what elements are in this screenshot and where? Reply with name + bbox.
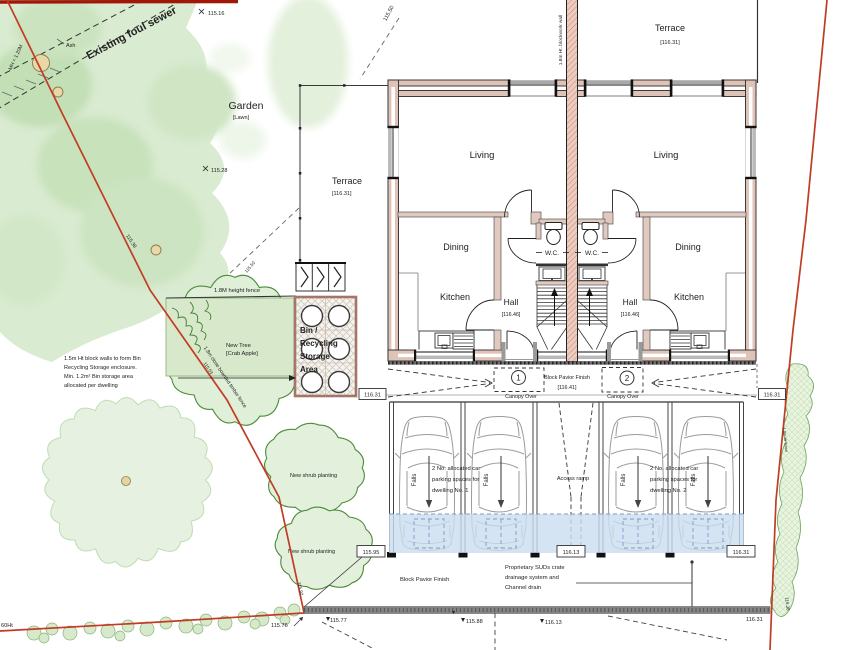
svg-text:Living: Living	[470, 150, 495, 161]
svg-text:W.C.: W.C.	[585, 250, 599, 257]
svg-text:116.13: 116.13	[563, 550, 580, 556]
svg-text:115.16: 115.16	[208, 11, 224, 17]
svg-text:Living: Living	[654, 150, 679, 161]
svg-text:[116.31]: [116.31]	[660, 40, 680, 46]
svg-text:allocated per dwelling: allocated per dwelling	[64, 383, 118, 389]
svg-text:2 No. allocated car: 2 No. allocated car	[432, 466, 480, 472]
svg-text:Hall: Hall	[623, 297, 638, 307]
svg-text:1.8m Ht. blockwork wall: 1.8m Ht. blockwork wall	[558, 15, 564, 65]
svg-text:New shrub planting: New shrub planting	[288, 549, 335, 555]
svg-text:1.8M height fence: 1.8M height fence	[214, 288, 260, 294]
svg-text:1.5m Ht block walls to form Bi: 1.5m Ht block walls to form Bin	[64, 356, 141, 362]
svg-text:116.31: 116.31	[364, 393, 381, 399]
svg-text:116.31: 116.31	[746, 617, 763, 623]
svg-text:2 No. allocated car: 2 No. allocated car	[650, 466, 698, 472]
svg-text:Ash: Ash	[66, 43, 75, 49]
svg-text:115.88: 115.88	[466, 619, 483, 625]
svg-text:116.31: 116.31	[764, 393, 781, 399]
svg-text:Garden: Garden	[228, 100, 263, 112]
svg-text:Hall: Hall	[504, 297, 519, 307]
svg-text:Bin /: Bin /	[300, 326, 318, 335]
svg-text:drainage system and: drainage system and	[505, 575, 559, 581]
svg-text:Falls: Falls	[621, 474, 627, 487]
svg-text:[116.46]: [116.46]	[502, 312, 521, 318]
svg-text:Kitchen: Kitchen	[674, 292, 704, 302]
svg-text:Min. 1.2m² Bin storage area: Min. 1.2m² Bin storage area	[64, 374, 134, 380]
svg-text:Falls: Falls	[484, 474, 490, 487]
svg-text:Kitchen: Kitchen	[440, 292, 470, 302]
svg-text:115.28: 115.28	[211, 168, 227, 174]
svg-text:115.95: 115.95	[363, 550, 380, 556]
svg-text:2: 2	[625, 374, 630, 383]
svg-text:parking spaces for: parking spaces for	[650, 477, 697, 483]
svg-text:New Tree: New Tree	[226, 343, 251, 349]
svg-text:Recycling Storage enclosure.: Recycling Storage enclosure.	[64, 365, 137, 371]
svg-text:Proprietary SUDs crate: Proprietary SUDs crate	[505, 565, 565, 571]
svg-text:[116.41]: [116.41]	[557, 385, 577, 391]
svg-text:Recycling: Recycling	[300, 339, 338, 348]
svg-text:Terrace: Terrace	[655, 23, 685, 33]
svg-text:[Lawn]: [Lawn]	[233, 115, 250, 121]
svg-text:parking spaces for: parking spaces for	[432, 477, 479, 483]
svg-text:Block Pavior Finish: Block Pavior Finish	[544, 375, 590, 381]
svg-text:Falls: Falls	[412, 474, 418, 487]
svg-text:1: 1	[516, 374, 521, 383]
svg-text:Terrace: Terrace	[332, 176, 362, 186]
svg-text:Dining: Dining	[443, 242, 469, 252]
svg-text:Canopy Over: Canopy Over	[607, 394, 639, 400]
svg-text:60Ht: 60Ht	[1, 623, 13, 629]
svg-text:115.76: 115.76	[271, 623, 288, 629]
svg-text:116.13: 116.13	[545, 620, 562, 626]
svg-text:W.C.: W.C.	[545, 250, 559, 257]
svg-text:Canopy Over: Canopy Over	[505, 394, 537, 400]
svg-text:Block Pavior Finish: Block Pavior Finish	[400, 577, 449, 583]
svg-text:[116.31]: [116.31]	[332, 191, 352, 197]
svg-text:dwelling No. 2: dwelling No. 2	[650, 488, 686, 494]
svg-text:[116.46]: [116.46]	[621, 312, 640, 318]
svg-text:Dining: Dining	[675, 242, 701, 252]
svg-text:115.77: 115.77	[330, 618, 347, 624]
svg-text:New shrub planting: New shrub planting	[290, 473, 337, 479]
svg-text:Storage: Storage	[300, 352, 330, 361]
svg-text:dwelling No. 1: dwelling No. 1	[432, 488, 468, 494]
svg-text:116.31: 116.31	[733, 550, 750, 556]
svg-text:Area: Area	[300, 365, 318, 374]
svg-text:Channel drain: Channel drain	[505, 585, 541, 591]
svg-text:Access ramp: Access ramp	[557, 476, 589, 482]
svg-text:[Crab Apple]: [Crab Apple]	[226, 351, 258, 357]
